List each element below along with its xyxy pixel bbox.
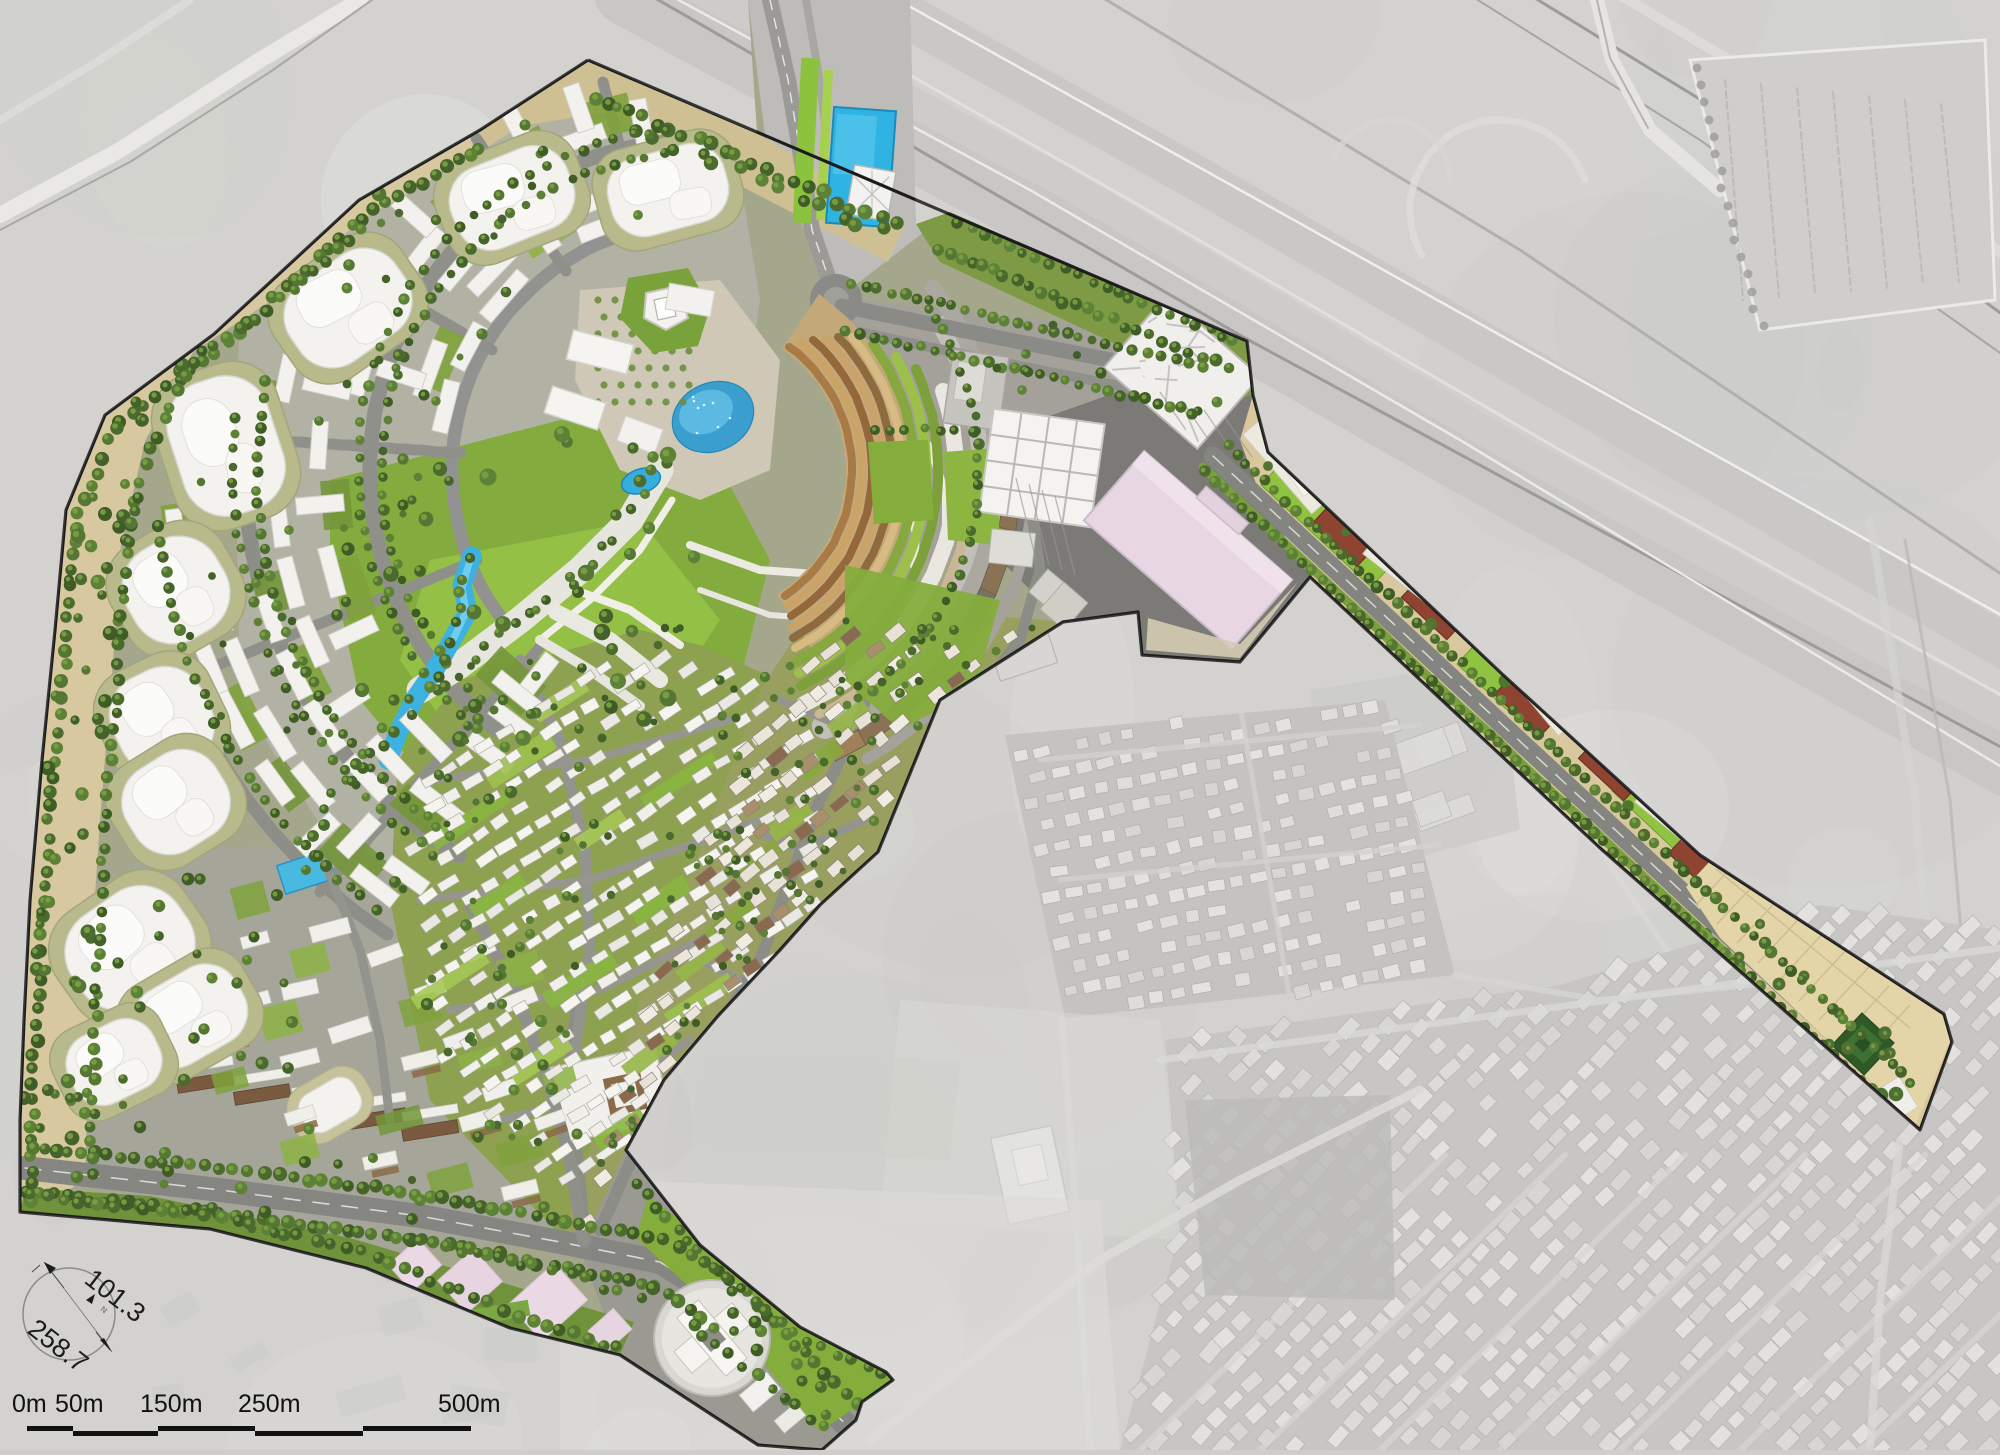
svg-text:0m: 0m [12, 1390, 47, 1418]
svg-text:250m: 250m [238, 1390, 301, 1418]
svg-text:150m: 150m [140, 1390, 203, 1418]
svg-text:50m: 50m [55, 1390, 104, 1418]
svg-text:500m: 500m [438, 1390, 501, 1418]
